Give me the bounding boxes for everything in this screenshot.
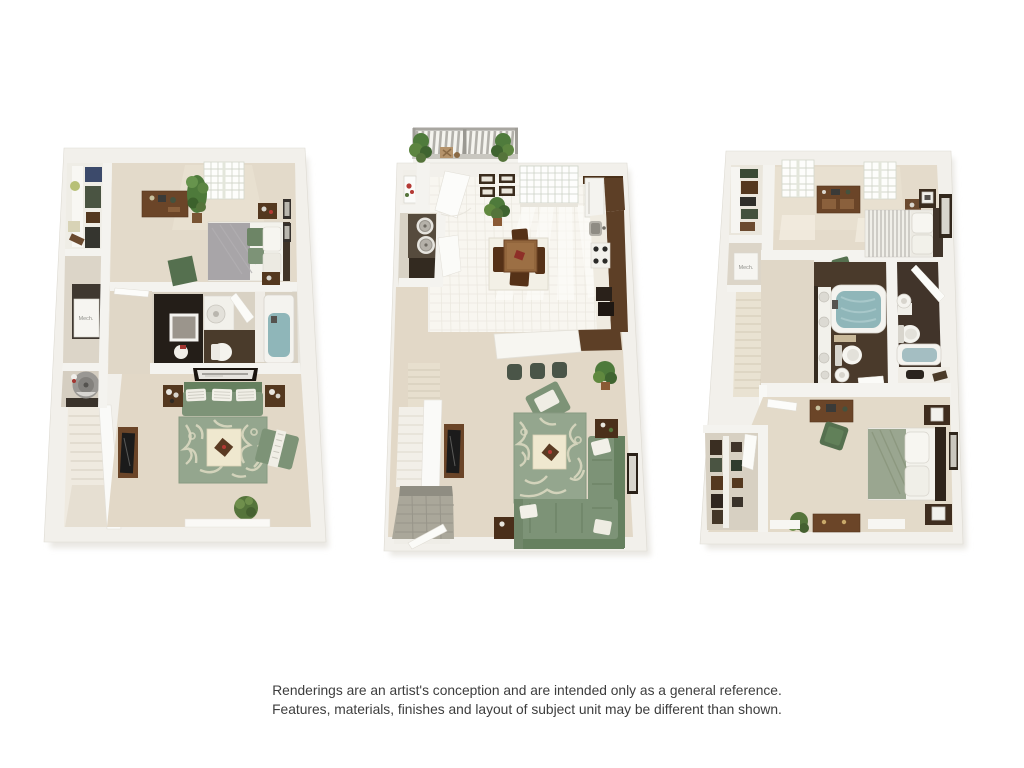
- svg-text:Mech.: Mech.: [79, 316, 94, 322]
- svg-text:Mech.: Mech.: [739, 265, 754, 271]
